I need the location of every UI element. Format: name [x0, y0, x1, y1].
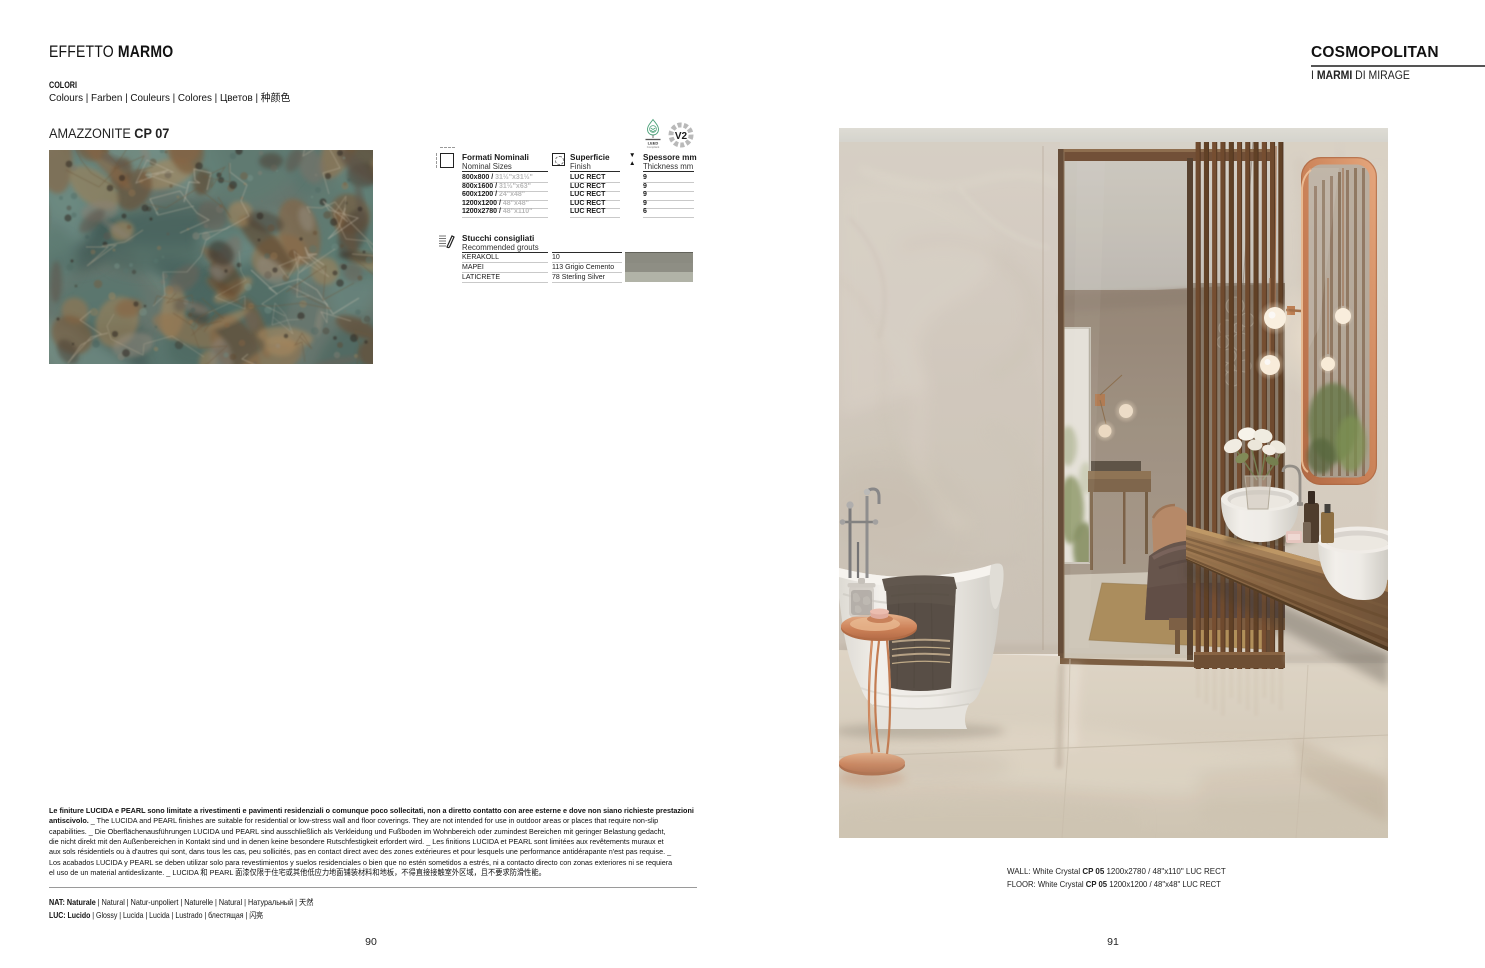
- svg-text:V2: V2: [675, 131, 688, 142]
- svg-text:Compliant: Compliant: [647, 145, 660, 149]
